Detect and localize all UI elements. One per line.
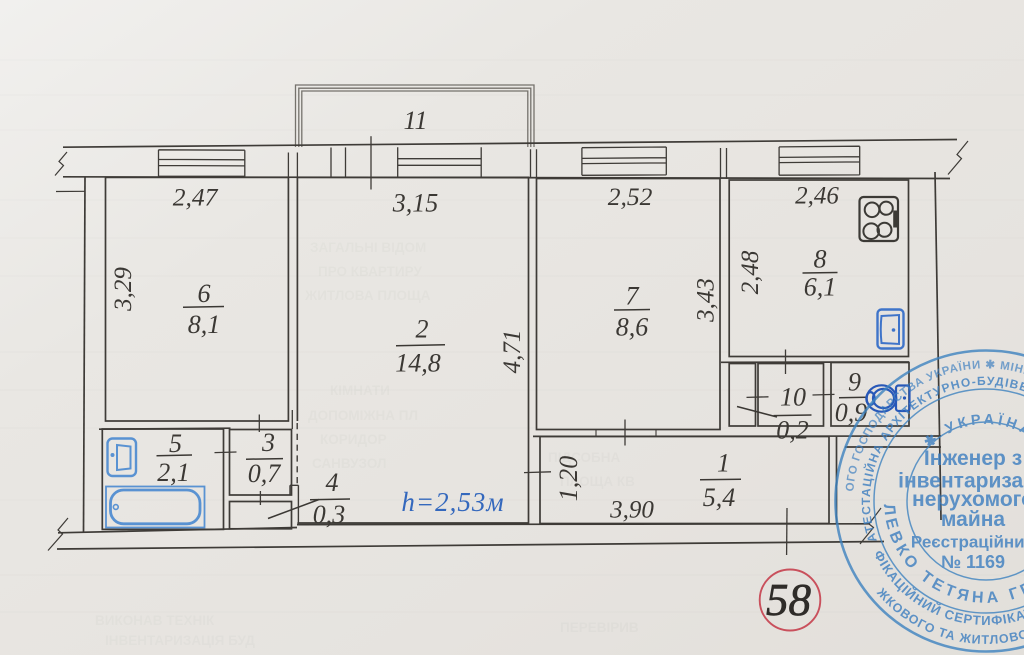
svg-text:КОРИДОР: КОРИДОР bbox=[320, 432, 387, 447]
svg-text:ПЕРЕВІРИВ: ПЕРЕВІРИВ bbox=[560, 620, 639, 635]
svg-text:7: 7 bbox=[626, 282, 640, 311]
svg-text:8,1: 8,1 bbox=[188, 310, 221, 339]
svg-text:3,90: 3,90 bbox=[609, 497, 654, 524]
svg-text:9: 9 bbox=[848, 368, 861, 397]
svg-text:0,9: 0,9 bbox=[835, 398, 868, 427]
svg-text:8,6: 8,6 bbox=[616, 313, 649, 342]
svg-text:КІМНАТИ: КІМНАТИ bbox=[330, 383, 390, 398]
svg-text:Інженер з: Інженер з bbox=[924, 447, 1022, 470]
svg-text:6: 6 bbox=[198, 279, 211, 308]
svg-text:2,1: 2,1 bbox=[157, 458, 190, 487]
svg-text:11: 11 bbox=[403, 106, 427, 135]
svg-text:ПРО КВАРТИРУ: ПРО КВАРТИРУ bbox=[318, 264, 422, 279]
svg-text:4,71: 4,71 bbox=[499, 330, 526, 374]
svg-text:6,1: 6,1 bbox=[804, 273, 837, 302]
svg-text:4: 4 bbox=[326, 468, 339, 497]
svg-text:h=2,53м: h=2,53м bbox=[401, 487, 504, 517]
svg-text:САНВУЗОЛ: САНВУЗОЛ bbox=[312, 456, 386, 471]
svg-text:ДОПОМІЖНА ПЛ: ДОПОМІЖНА ПЛ bbox=[308, 408, 418, 423]
svg-text:№ 1169: № 1169 bbox=[941, 552, 1005, 572]
svg-text:0,2: 0,2 bbox=[776, 416, 809, 445]
svg-text:2,52: 2,52 bbox=[608, 182, 653, 211]
svg-text:3: 3 bbox=[261, 428, 275, 457]
svg-text:2,48: 2,48 bbox=[737, 250, 764, 294]
svg-text:2,46: 2,46 bbox=[795, 183, 839, 210]
svg-text:3,43: 3,43 bbox=[693, 278, 720, 323]
svg-text:майна: майна bbox=[941, 508, 1006, 531]
svg-text:3,15: 3,15 bbox=[392, 189, 439, 218]
svg-text:2: 2 bbox=[416, 315, 429, 344]
svg-text:2,47: 2,47 bbox=[173, 183, 219, 212]
svg-text:58: 58 bbox=[766, 575, 811, 625]
svg-text:0,7: 0,7 bbox=[248, 459, 282, 488]
svg-text:1,20: 1,20 bbox=[554, 456, 583, 502]
svg-text:5: 5 bbox=[169, 429, 182, 458]
svg-text:3,29: 3,29 bbox=[110, 267, 137, 312]
svg-text:0,3: 0,3 bbox=[313, 500, 346, 529]
svg-text:8: 8 bbox=[814, 245, 827, 274]
svg-text:1: 1 bbox=[717, 449, 730, 478]
svg-text:ЗАГАЛЬНІ ВІДОМ: ЗАГАЛЬНІ ВІДОМ bbox=[310, 240, 426, 255]
svg-text:14,8: 14,8 bbox=[395, 349, 441, 378]
svg-text:Реєстраційний: Реєстраційний bbox=[911, 533, 1024, 552]
svg-text:5,4: 5,4 bbox=[703, 483, 736, 512]
svg-text:ІНВЕНТАРИЗАЦІЯ БУД: ІНВЕНТАРИЗАЦІЯ БУД bbox=[105, 633, 255, 648]
svg-text:10: 10 bbox=[780, 383, 806, 412]
svg-text:ВИКОНАВ ТЕХНІК: ВИКОНАВ ТЕХНІК bbox=[95, 613, 215, 628]
svg-text:ЖИТЛОВА ПЛОЩА: ЖИТЛОВА ПЛОЩА bbox=[304, 288, 431, 303]
